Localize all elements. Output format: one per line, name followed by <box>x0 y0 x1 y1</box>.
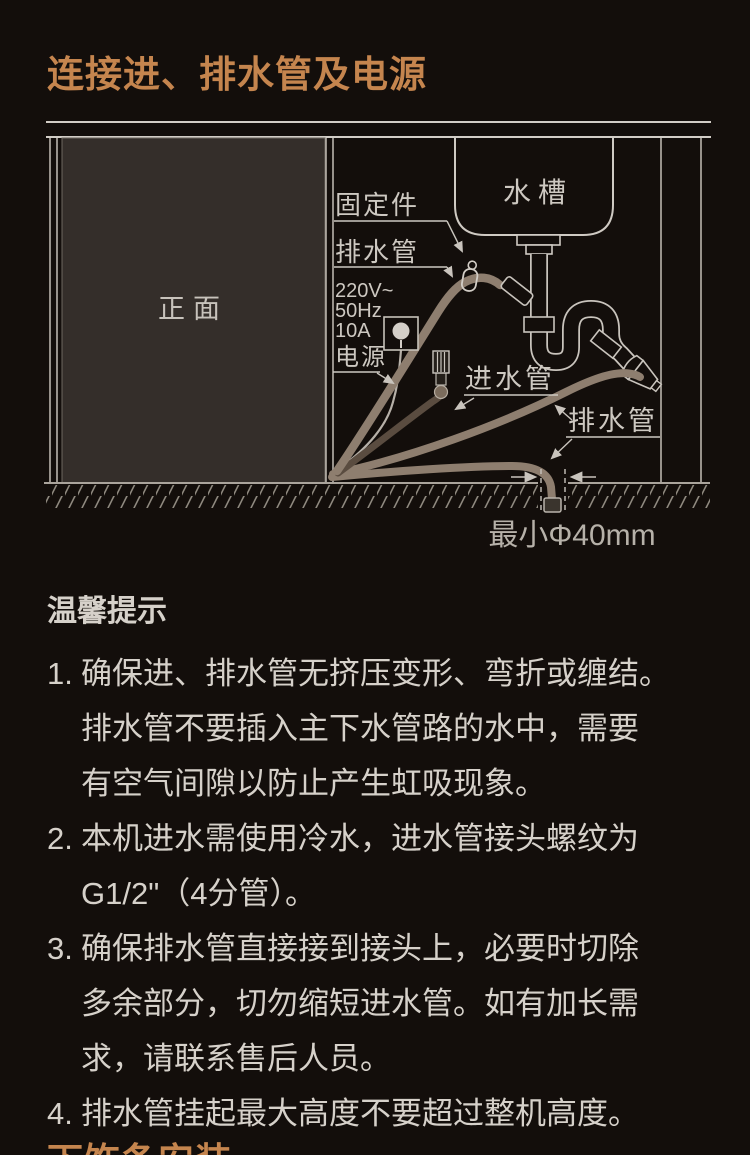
min-diameter-label: 最小Φ40mm <box>488 519 655 552</box>
power-spec-voltage: 220V~ <box>335 280 393 302</box>
tip-item-3: 3. 确保排水管直接接到接头上，必要时切除 多余部分，切勿缩短进水管。如有加长需… <box>47 921 715 1086</box>
tip-number: 2. <box>47 811 81 866</box>
power-outlet <box>384 317 418 350</box>
page-title: 连接进、排水管及电源 <box>47 44 427 98</box>
drain-label-right-group: 排水管 <box>552 406 660 458</box>
tip-number: 3. <box>47 921 81 976</box>
floor-hole-dimension: 最小Φ40mm <box>488 469 655 552</box>
right-wall <box>661 138 701 482</box>
drain-hose-end-fitting <box>500 276 534 307</box>
tips-heading: 温馨提示 <box>47 584 715 640</box>
power-label: 电源 <box>335 344 387 371</box>
front-label: 正面 <box>158 294 228 324</box>
drain-label-left: 排水管 <box>335 237 419 267</box>
floor-pipe-cap <box>544 498 561 512</box>
dishwasher-front-panel: 正面 <box>62 138 325 483</box>
power-spec-frequency: 50Hz <box>335 300 382 322</box>
tip-item-1: 1. 确保进、排水管无挤压变形、弯折或缠结。 排水管不要插入主下水管路的水中，需… <box>47 646 715 811</box>
fixing-label: 固定件 <box>335 190 419 220</box>
trap-coupling-nut <box>524 317 554 332</box>
installation-diagram-svg: 正面 <box>0 100 750 570</box>
floor-hatch-left <box>46 485 538 508</box>
countertop <box>46 122 711 137</box>
power-spec-current: 10A <box>335 320 371 342</box>
floor <box>44 483 710 508</box>
tip-text: 确保进、排水管无挤压变形、弯折或缠结。 排水管不要插入主下水管路的水中，需要 有… <box>81 646 715 811</box>
tip-text: 本机进水需使用冷水，进水管接头螺纹为 G1/2"（4分管）。 <box>81 811 715 921</box>
tips-section: 温馨提示 1. 确保进、排水管无挤压变形、弯折或缠结。 排水管不要插入主下水管路… <box>47 584 715 1141</box>
inlet-ribbed-connector <box>433 351 449 373</box>
tip-item-2: 2. 本机进水需使用冷水，进水管接头螺纹为 G1/2"（4分管）。 <box>47 811 715 921</box>
tip-number: 1. <box>47 646 81 701</box>
inlet-label: 进水管 <box>465 364 555 394</box>
tip-text: 确保排水管直接接到接头上，必要时切除 多余部分，切勿缩短进水管。如有加长需 求，… <box>81 921 715 1086</box>
installation-diagram: 正面 <box>0 100 750 570</box>
outlet-socket <box>393 323 410 340</box>
left-wall <box>50 138 57 483</box>
middle-wall <box>326 138 333 483</box>
next-section-heading: 下饰条安装 <box>47 1132 232 1155</box>
inlet-ball-joint <box>435 386 448 399</box>
sink-label: 水槽 <box>503 177 573 208</box>
floor-hatch-right <box>568 485 710 508</box>
drain-label-right: 排水管 <box>568 406 658 436</box>
manual-page: 连接进、排水管及电源 <box>0 0 750 1155</box>
